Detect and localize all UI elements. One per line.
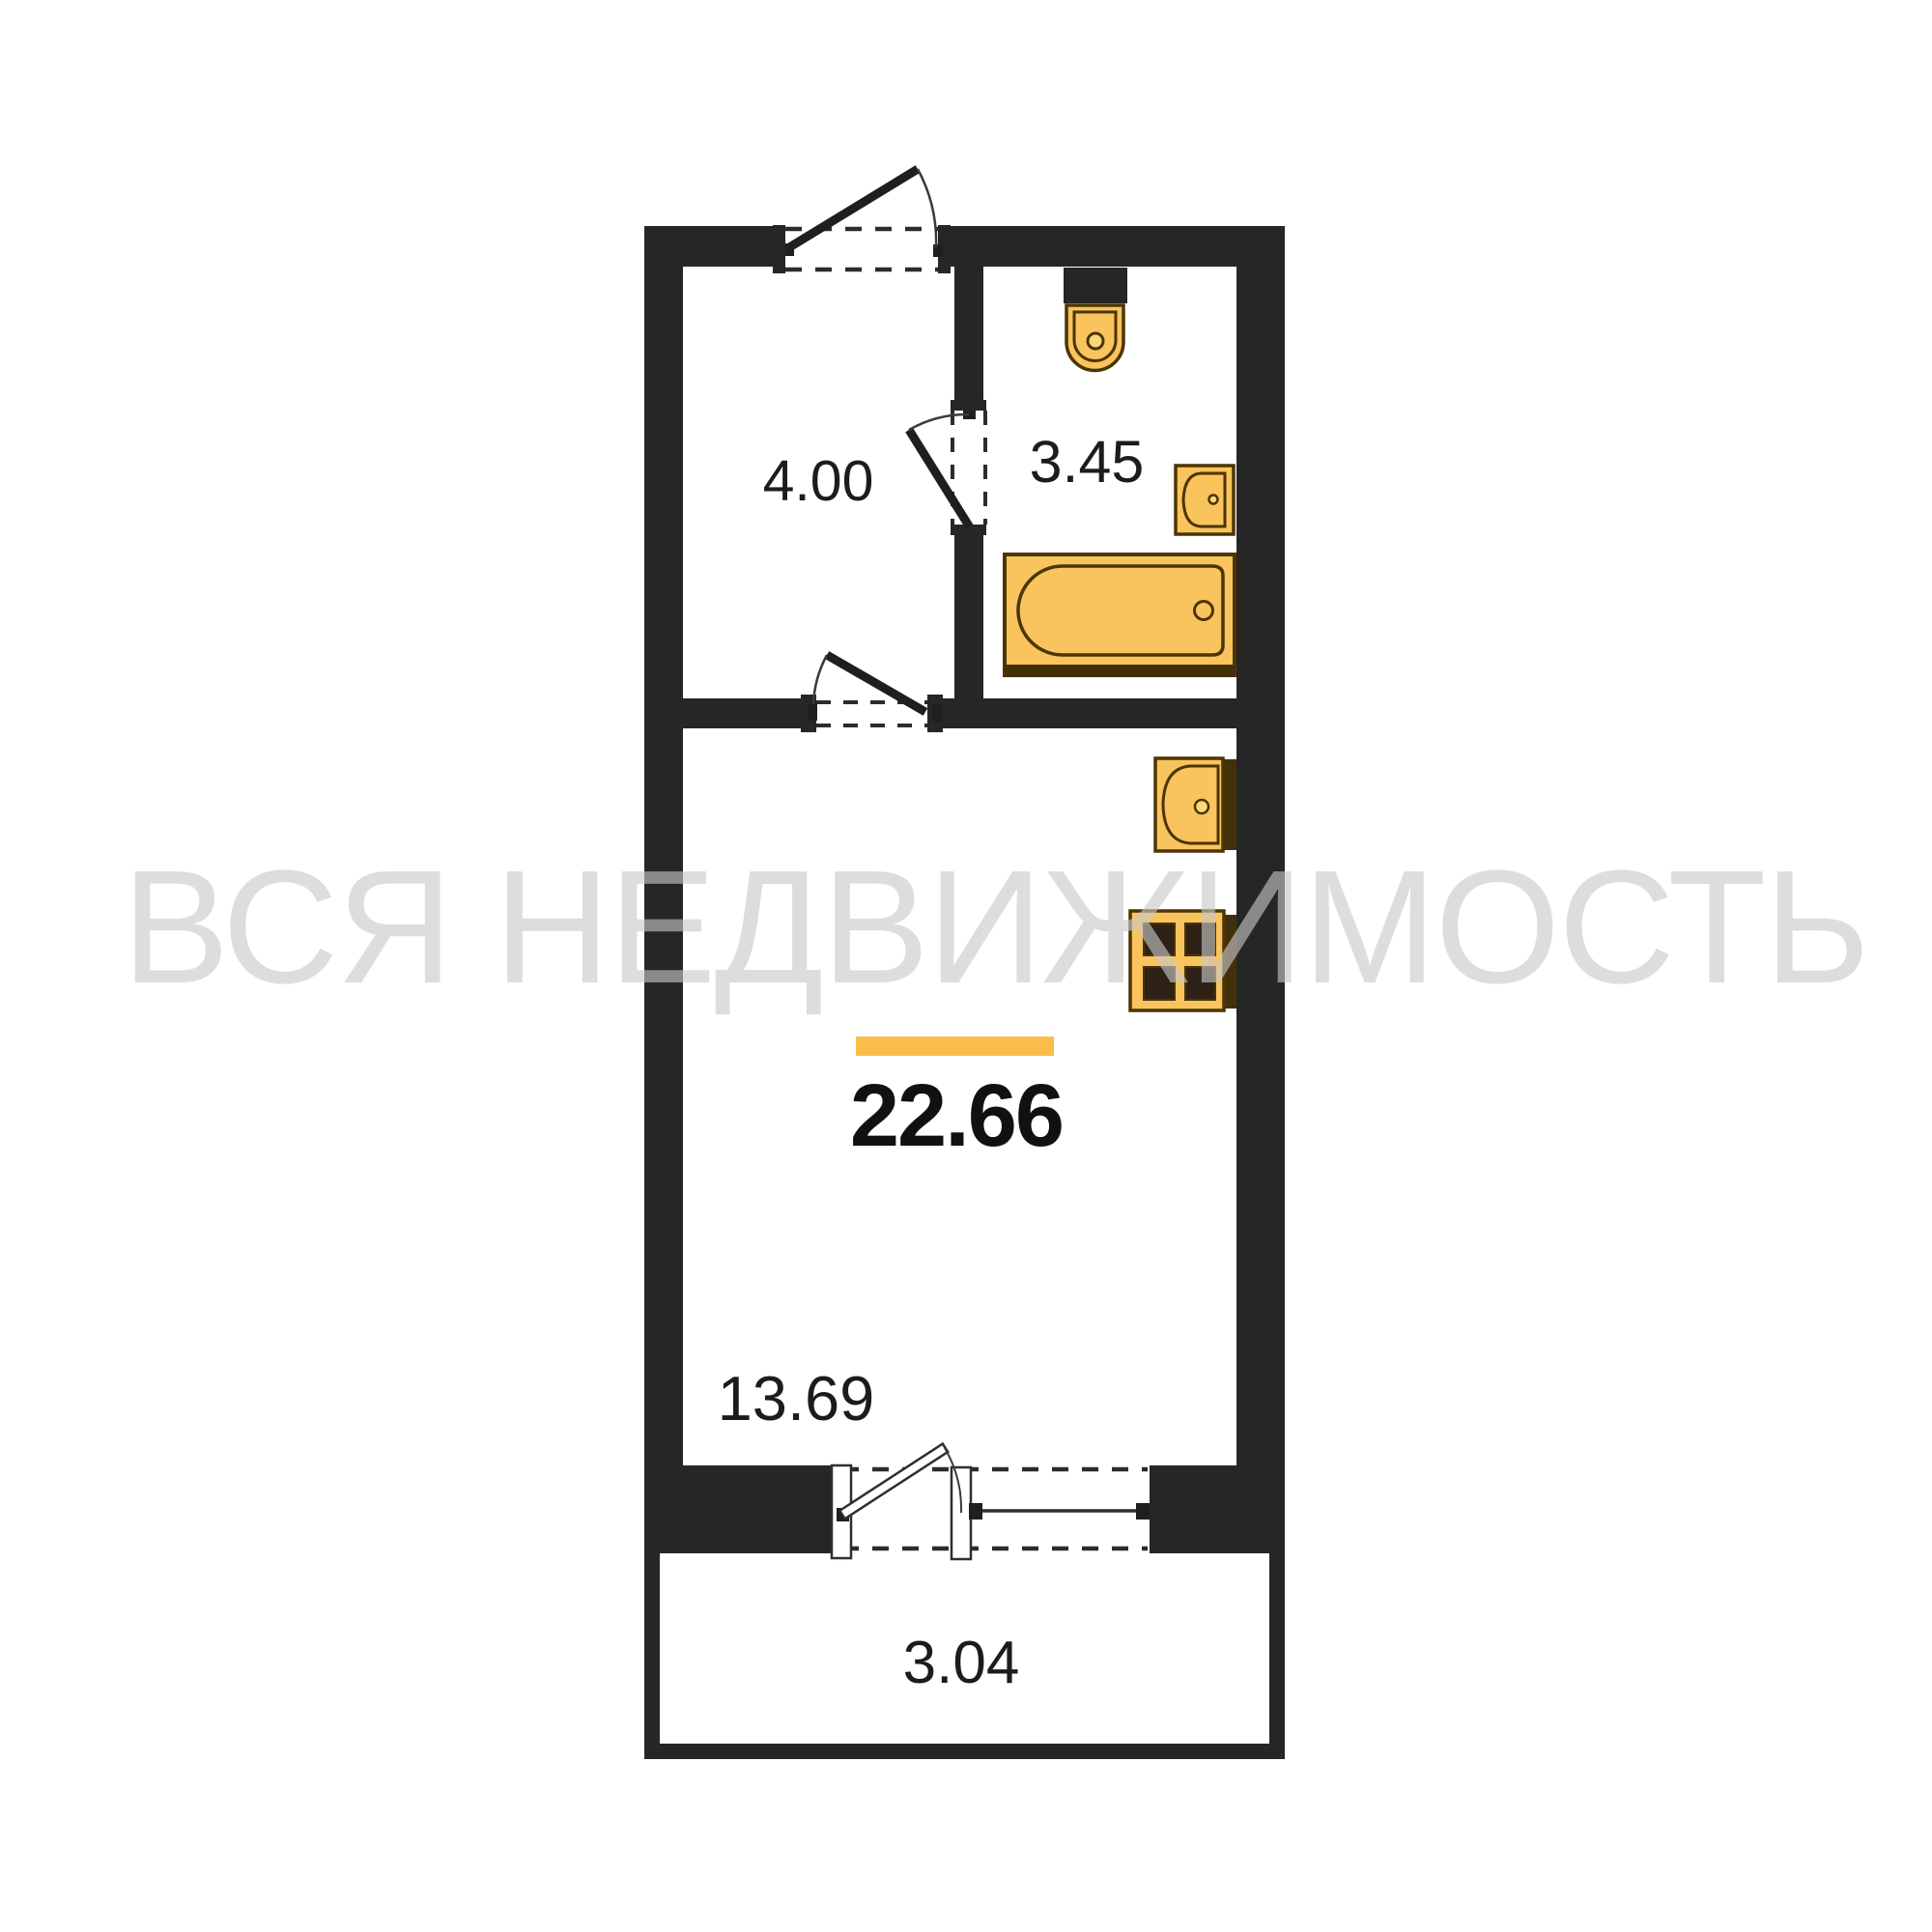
svg-text:ВСЯ НЕДВИЖИМОСТЬ: ВСЯ НЕДВИЖИМОСТЬ [122, 838, 1868, 1017]
svg-text:4.00: 4.00 [763, 449, 874, 513]
svg-text:3.45: 3.45 [1030, 429, 1145, 495]
svg-text:22.66: 22.66 [850, 1066, 1063, 1165]
svg-text:13.69: 13.69 [718, 1363, 875, 1434]
svg-text:3.04: 3.04 [903, 1630, 1020, 1696]
